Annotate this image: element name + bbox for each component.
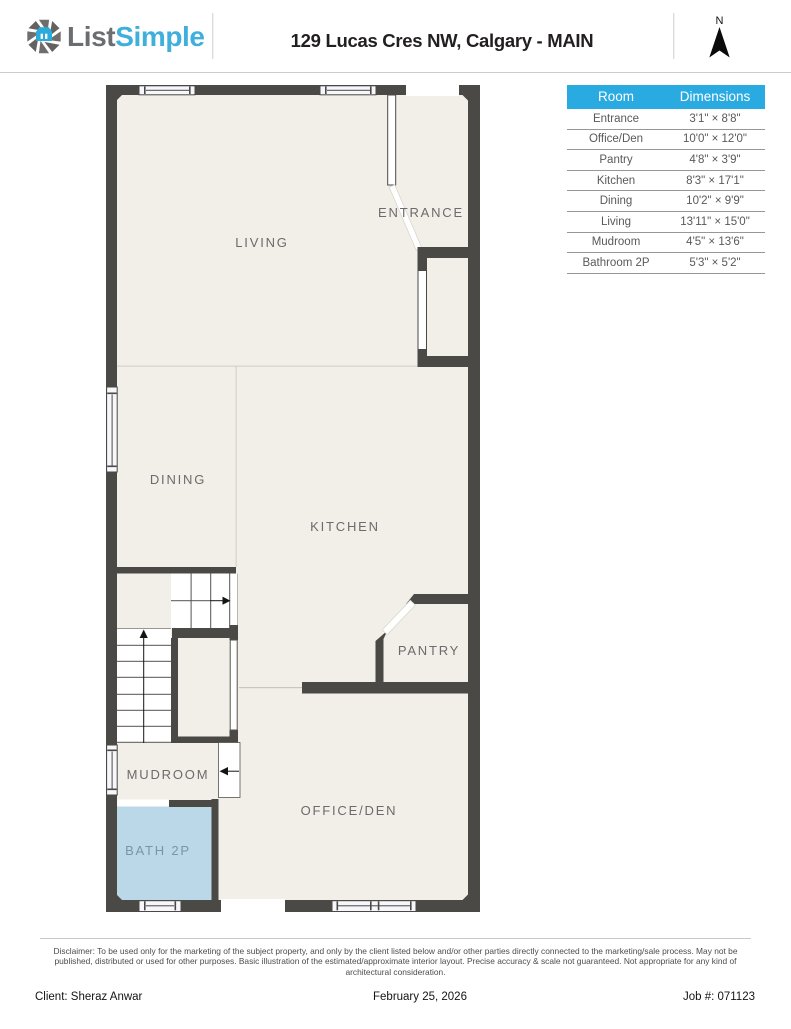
svg-text:LIVING: LIVING <box>235 235 288 250</box>
svg-text:OFFICE/DEN: OFFICE/DEN <box>301 803 398 818</box>
svg-text:KITCHEN: KITCHEN <box>310 519 380 534</box>
svg-text:DINING: DINING <box>150 472 206 487</box>
svg-text:PANTRY: PANTRY <box>398 643 460 658</box>
svg-text:BATH 2P: BATH 2P <box>125 843 191 858</box>
svg-text:MUDROOM: MUDROOM <box>127 767 210 782</box>
svg-text:ENTRANCE: ENTRANCE <box>378 205 464 220</box>
